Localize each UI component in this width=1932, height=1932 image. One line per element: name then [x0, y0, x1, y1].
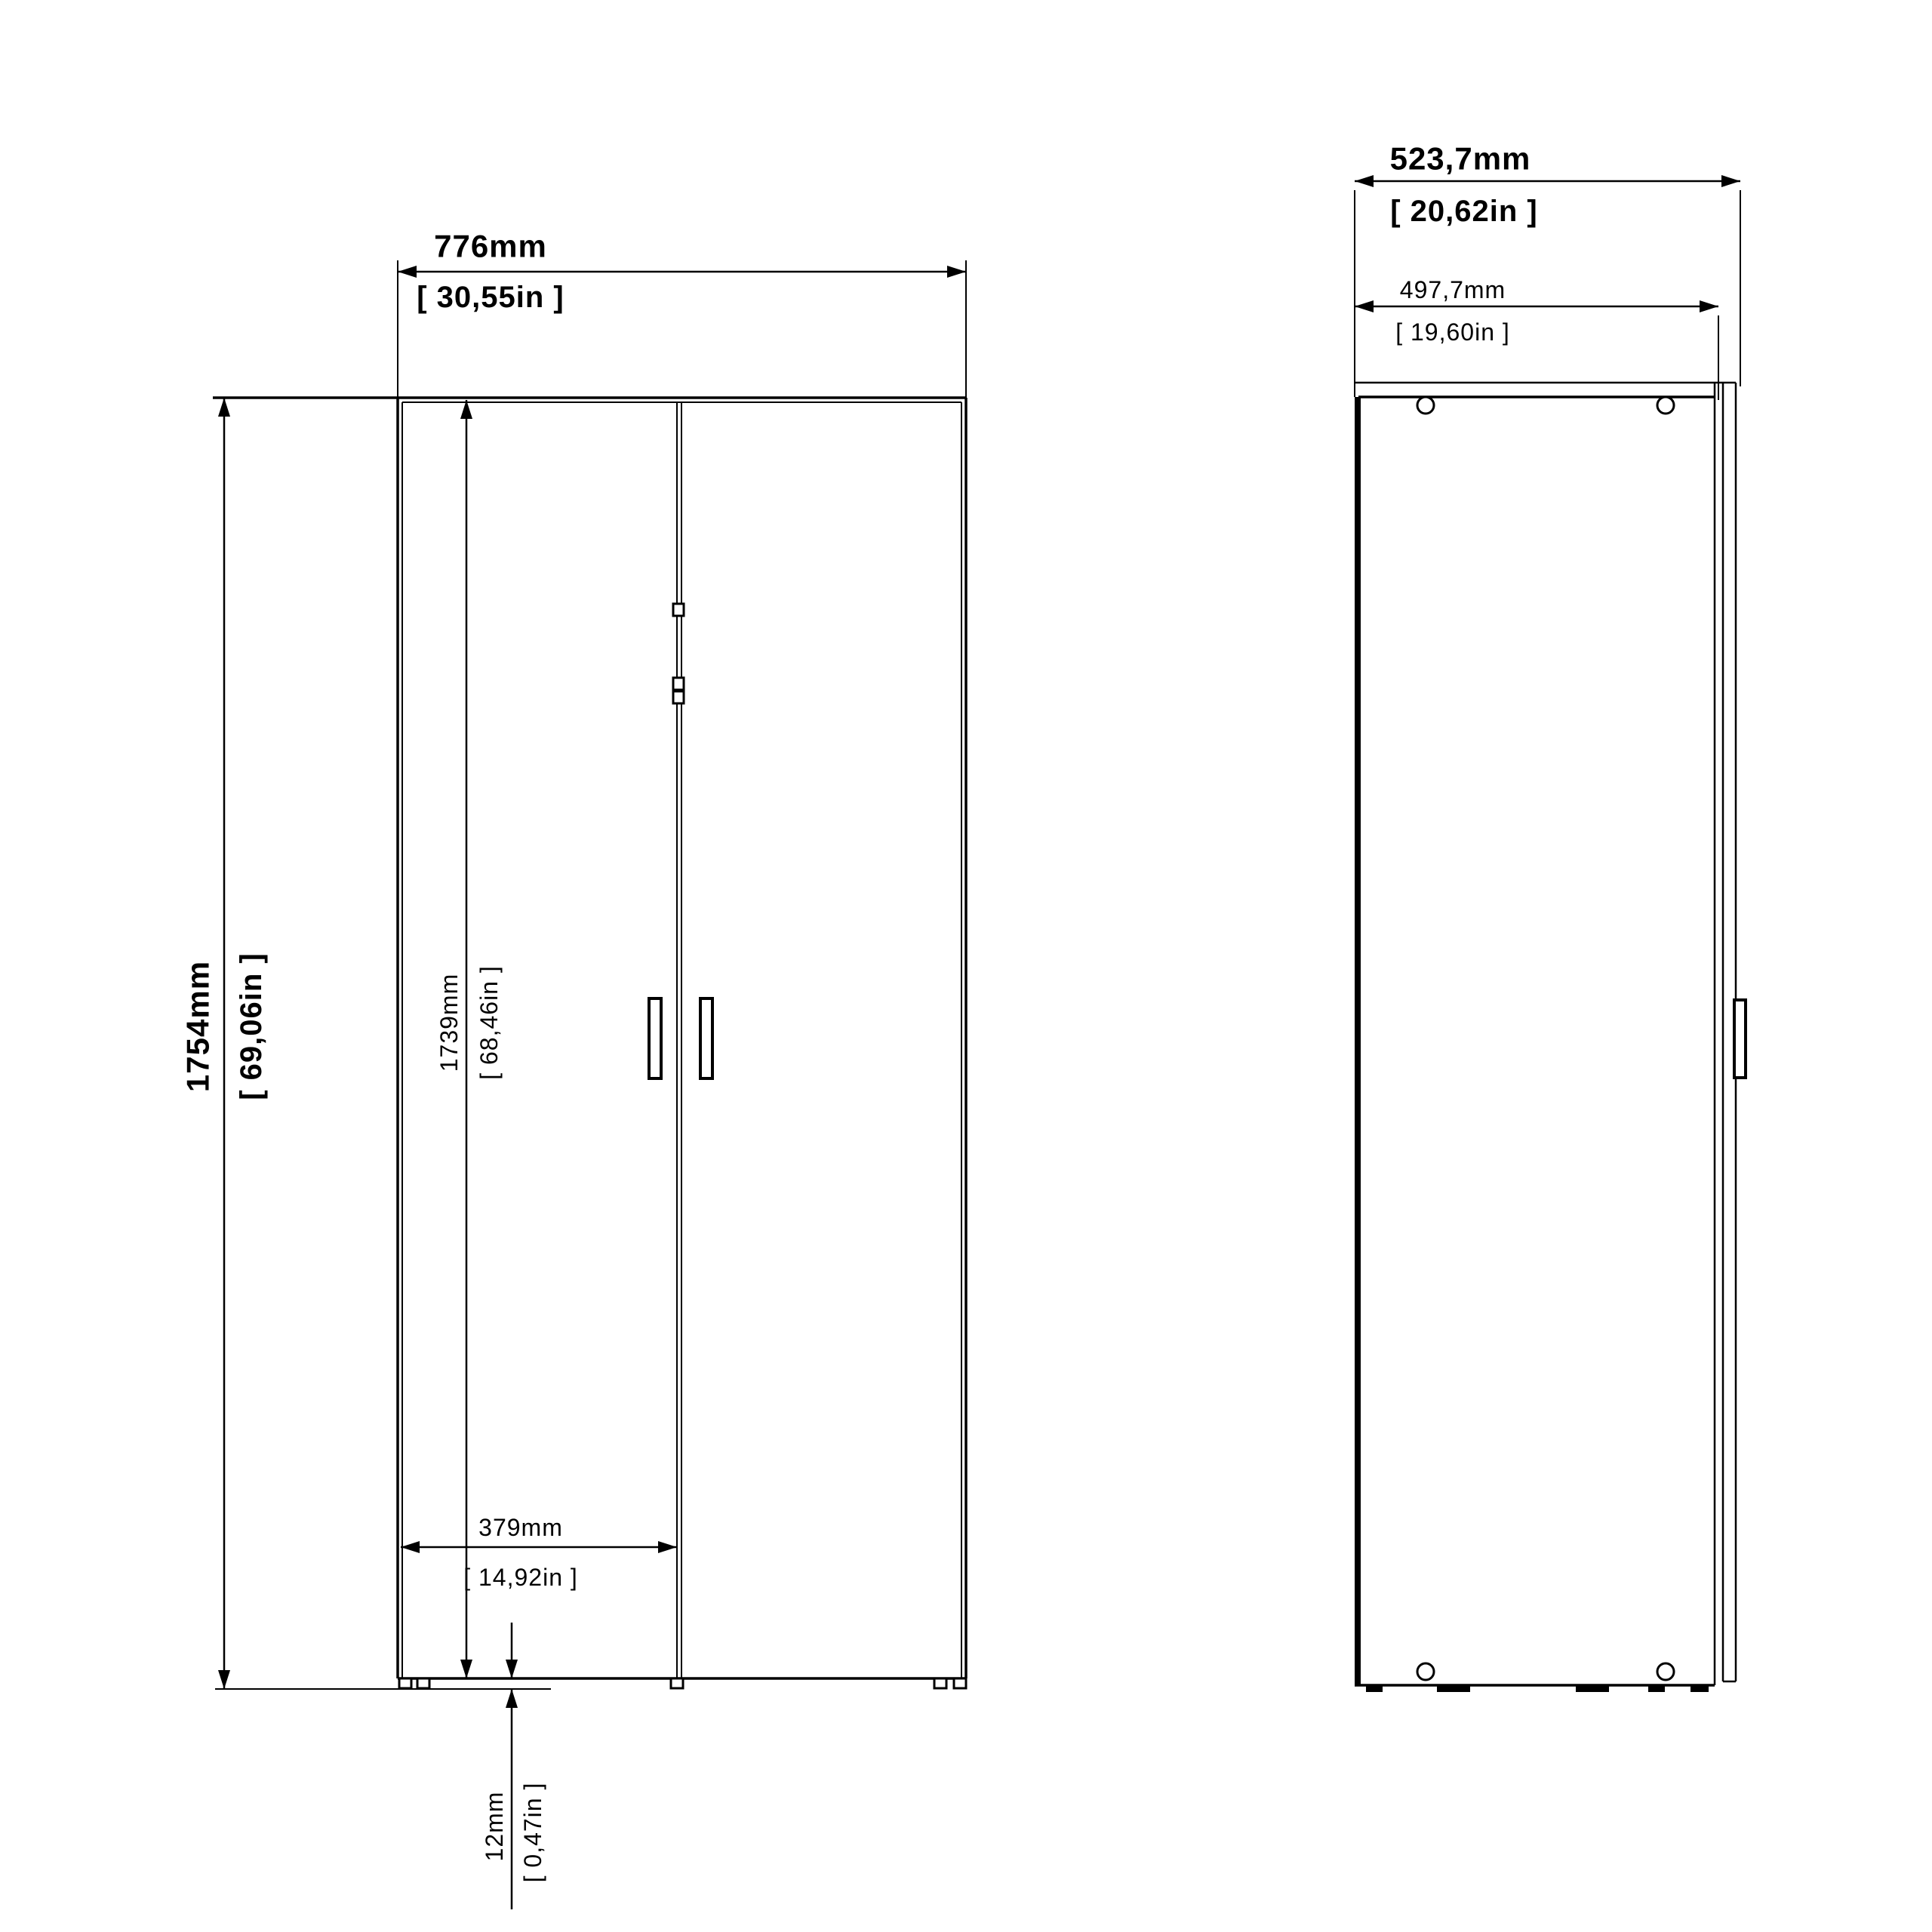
front-width-mm-label: 776mm — [434, 229, 547, 264]
body-depth-mm-label: 497,7mm — [1400, 276, 1506, 303]
arrowhead-up — [506, 1689, 518, 1708]
side-door-handle — [1734, 1000, 1746, 1078]
front-height-in-label: [ 69,06in ] — [235, 952, 268, 1100]
mounting-hole — [1417, 1663, 1434, 1680]
side-back-panel-edge — [1355, 397, 1361, 1685]
dimension-body-depth: 497,7mm [ 19,60in ] — [1355, 276, 1718, 400]
arrowhead-right — [947, 266, 966, 278]
door-gap-hinge-mark — [673, 691, 684, 703]
mounting-hole — [1657, 397, 1674, 414]
arrowhead-bottom — [218, 1670, 230, 1689]
foot — [1366, 1685, 1383, 1692]
foot — [954, 1678, 966, 1688]
door-height-mm-label: 1739mm — [435, 974, 463, 1072]
dimension-door-height: 1739mm [ 68,46in ] — [435, 400, 503, 1678]
foot — [1690, 1685, 1709, 1692]
front-feet — [399, 1678, 966, 1688]
front-height-mm-label: 1754mm — [180, 961, 216, 1092]
right-door-handle — [700, 998, 712, 1078]
door-width-in-label: [ 14,92in ] — [463, 1564, 578, 1591]
foot — [1437, 1685, 1470, 1692]
arrowhead-left — [1355, 300, 1374, 312]
foot — [1648, 1685, 1665, 1692]
base-height-mm-label: 12mm — [481, 1792, 508, 1862]
foot — [417, 1678, 429, 1688]
side-view: 523,7mm [ 20,62in ] 497,7mm [ 19,60in ] — [1355, 141, 1746, 1693]
arrowhead-right — [1700, 300, 1718, 312]
door-gap-hinge-mark — [673, 678, 684, 690]
front-width-in-label: [ 30,55in ] — [417, 281, 565, 314]
door-height-in-label: [ 68,46in ] — [475, 965, 503, 1080]
foot — [671, 1678, 683, 1688]
foot — [399, 1678, 411, 1688]
technical-drawing-page: 776mm [ 30,55in ] 1754mm [ 69,06in ] 173… — [0, 0, 1932, 1932]
arrowhead-right — [1721, 175, 1740, 187]
door-width-mm-label: 379mm — [478, 1514, 563, 1541]
arrowhead-down — [506, 1660, 518, 1678]
dimension-total-depth: 523,7mm [ 20,62in ] — [1355, 141, 1740, 398]
front-view: 776mm [ 30,55in ] 1754mm [ 69,06in ] 173… — [180, 229, 967, 1910]
arrowhead-left — [398, 266, 417, 278]
base-height-in-label: [ 0,47in ] — [519, 1783, 546, 1883]
body-depth-in-label: [ 19,60in ] — [1395, 318, 1510, 346]
dimension-door-width: 379mm [ 14,92in ] — [401, 1514, 677, 1591]
mounting-hole — [1417, 397, 1434, 414]
left-door-handle — [649, 998, 661, 1078]
total-depth-mm-label: 523,7mm — [1390, 141, 1531, 177]
dimension-width: 776mm [ 30,55in ] — [398, 229, 966, 398]
foot — [1576, 1685, 1609, 1692]
arrowhead-left — [1355, 175, 1374, 187]
dimension-base-height: 12mm [ 0,47in ] — [481, 1623, 546, 1909]
dimension-height: 1754mm [ 69,06in ] — [180, 398, 269, 1689]
arrowhead-top — [218, 398, 230, 417]
foot — [934, 1678, 946, 1688]
mounting-hole — [1657, 1663, 1674, 1680]
arrowhead-bottom — [460, 1660, 472, 1678]
total-depth-in-label: [ 20,62in ] — [1390, 195, 1538, 228]
wardrobe-dimension-drawing: 776mm [ 30,55in ] 1754mm [ 69,06in ] 173… — [0, 0, 1932, 1932]
door-gap-hinge-mark — [673, 604, 684, 616]
arrowhead-left — [401, 1541, 420, 1553]
arrowhead-right — [658, 1541, 677, 1553]
